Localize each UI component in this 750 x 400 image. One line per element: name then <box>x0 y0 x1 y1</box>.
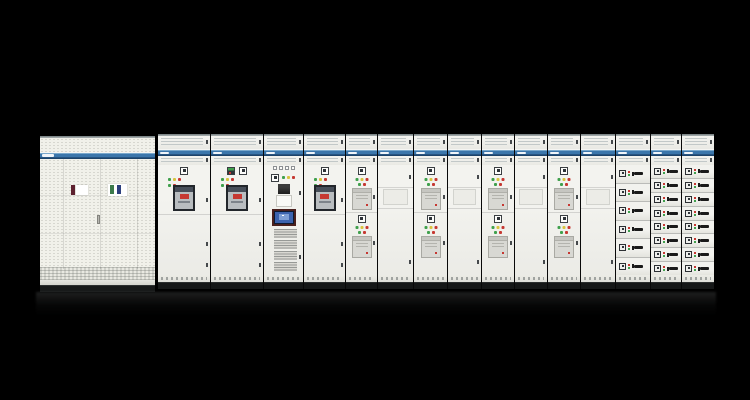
drawer-indicators <box>694 169 696 174</box>
drawer-indicators <box>663 252 665 257</box>
terminal-module-group <box>271 240 297 249</box>
module-red-dot <box>502 204 504 206</box>
mesh-seam <box>581 187 615 188</box>
drawer-indicator-green <box>694 269 696 271</box>
drawer-unit <box>682 221 714 235</box>
louver-latch <box>341 140 343 144</box>
handle-grip <box>634 265 643 268</box>
breaker-control-device <box>358 167 366 175</box>
drawer-indicator-red <box>628 190 630 192</box>
drawer-indicator-green <box>694 200 696 202</box>
drawer-handle <box>698 169 709 173</box>
brand-logo-mark <box>306 152 315 154</box>
indicator-light-green <box>560 183 563 186</box>
mini-indicator <box>273 166 277 170</box>
cabinet-feeder-3 <box>481 134 514 289</box>
louver-latch <box>611 140 613 144</box>
bottom-vent-strip <box>158 275 210 282</box>
indicator-light-green <box>494 183 497 186</box>
drawer-handle <box>667 239 678 243</box>
drawer-unit <box>651 165 681 179</box>
indicator-light-green <box>221 184 224 187</box>
module-red-dot <box>568 252 570 254</box>
door-seam <box>304 214 345 215</box>
louver-latch <box>543 140 545 144</box>
louver-latch <box>477 140 479 144</box>
module-top-strip <box>555 189 573 193</box>
handle-grip <box>700 225 709 228</box>
drawer-indicator-green <box>628 193 630 195</box>
drawer-unit <box>682 248 714 262</box>
drawer-indicator-green <box>663 227 665 229</box>
vent-slats <box>451 277 478 280</box>
louver-latch <box>259 140 261 144</box>
louver-slats <box>161 138 203 147</box>
handle-grip <box>669 170 678 173</box>
cabinet-vent-door-1 <box>377 134 413 289</box>
acb-breaker-window <box>173 185 195 211</box>
indicator-light-red <box>432 183 435 186</box>
bottom-vent-strip <box>378 275 413 282</box>
drawer-meter-window <box>685 251 692 258</box>
louver-latch <box>409 140 411 144</box>
brand-logo-mark <box>266 152 275 154</box>
bottom-vent-strip <box>346 275 377 282</box>
top-louver-panel <box>682 136 714 149</box>
recorder-box <box>276 195 292 207</box>
indicator-lights <box>221 178 234 181</box>
drawer-indicator-red <box>663 266 665 268</box>
breaker-control-device <box>239 167 247 175</box>
drawer-indicator-green <box>628 230 630 232</box>
cabinet-mcc-drawers-3 <box>681 134 714 289</box>
top-louver-panel <box>581 136 615 149</box>
louver-latch <box>677 140 679 144</box>
module-line <box>558 243 570 244</box>
cabinet-plinth <box>414 282 447 289</box>
indicator-light-green <box>168 178 171 181</box>
drawer-handle <box>698 267 709 271</box>
louver-slats <box>214 138 256 147</box>
upper-louver-panel <box>682 156 714 165</box>
drawer-indicator-green <box>628 248 630 250</box>
door-seam-1 <box>100 159 101 269</box>
mesh-seam <box>515 187 547 188</box>
bottom-vent-strip <box>304 275 345 282</box>
indicator-light-green <box>355 178 358 181</box>
vent-slats <box>685 277 711 280</box>
indicator-light-red <box>178 178 181 181</box>
drawer-meter-window <box>619 207 626 214</box>
brand-logo-mark <box>653 152 662 154</box>
indicator-light-green <box>427 183 430 186</box>
indicator-light-yellow <box>287 176 290 179</box>
drawer-unit <box>616 258 650 276</box>
indicator-light-red <box>231 178 234 181</box>
mesh-cover-plate <box>586 189 610 205</box>
module-line <box>492 243 504 244</box>
mesh-ventilated-door <box>581 165 615 275</box>
louver-latch <box>646 140 648 144</box>
cabinet-plinth <box>616 282 650 289</box>
indicator-lights <box>560 183 568 186</box>
drawer-handle <box>698 183 709 187</box>
indicator-light-red <box>502 226 505 229</box>
brand-logo-mark <box>213 152 222 154</box>
louver-latch <box>206 158 208 162</box>
door-latch <box>373 195 375 199</box>
vent-slats <box>485 277 511 280</box>
drawer-indicators <box>694 266 696 271</box>
cabinet-plinth <box>211 282 263 289</box>
cabinet-door-area <box>548 165 580 275</box>
indicator-light-yellow <box>429 178 432 181</box>
acb-rating-plate <box>180 194 189 199</box>
indicator-light-red <box>324 178 327 181</box>
drawer-indicators <box>663 238 665 243</box>
drawer-indicator-green <box>628 211 630 213</box>
door-latch <box>611 260 613 264</box>
indicator-light-red <box>363 183 366 186</box>
acb-face-top <box>175 187 193 192</box>
drawer-handle <box>632 172 643 176</box>
indicator-light-green <box>427 231 430 234</box>
cabinet-plinth <box>581 282 615 289</box>
louver-latch <box>443 158 445 162</box>
louver-slats <box>349 138 370 147</box>
bottom-vent-strip <box>548 275 580 282</box>
louver-slats <box>485 158 507 163</box>
cabinet-plinth <box>304 282 345 289</box>
drawer-indicator-red <box>694 224 696 226</box>
cabinet-plinth <box>515 282 547 289</box>
module-red-dot <box>568 204 570 206</box>
door-hseam-0 <box>40 195 155 196</box>
tier-divider <box>548 212 580 213</box>
door-latch <box>206 198 208 202</box>
acb-label <box>178 201 190 203</box>
drawer-meter-window <box>654 210 661 217</box>
louver-latch <box>646 158 648 162</box>
door-latch <box>341 198 343 202</box>
indicator-light-green <box>221 178 224 181</box>
indicator-light-yellow <box>497 226 500 229</box>
upper-louver-panel <box>378 156 413 165</box>
module-line <box>558 195 570 196</box>
indicator-lights <box>494 231 502 234</box>
door-latch <box>543 260 545 264</box>
drawer-indicator-red <box>663 197 665 199</box>
brand-band <box>264 149 303 156</box>
perforated-doors <box>40 159 155 268</box>
module-red-dot <box>435 204 437 206</box>
module-top-strip <box>422 189 440 193</box>
louver-slats <box>349 158 370 163</box>
indicator-light-yellow <box>360 178 363 181</box>
cabinet-plinth <box>448 282 481 289</box>
brand-band <box>304 149 345 156</box>
cabinet-door-area <box>651 165 681 275</box>
top-louver-panel <box>158 136 210 149</box>
module-line <box>425 246 437 247</box>
louver-slats <box>417 158 440 163</box>
drawer-handle <box>667 225 678 229</box>
louver-slats <box>619 138 643 147</box>
indicator-light-green <box>424 226 427 229</box>
top-louver-panel <box>548 136 580 149</box>
indicator-lights <box>168 178 181 181</box>
drawer-handle <box>632 209 643 213</box>
indicator-lights <box>492 226 505 229</box>
module-top-strip <box>422 237 440 241</box>
indicator-lights <box>492 178 505 181</box>
louver-slats <box>267 158 296 163</box>
drawer-indicator-red <box>694 169 696 171</box>
upper-louver-panel <box>346 156 377 165</box>
louver-slats <box>518 158 540 163</box>
drawer-indicator-green <box>694 172 696 174</box>
module-line <box>356 195 368 196</box>
cabinet-door-area <box>346 165 377 275</box>
drawer-unit <box>651 193 681 207</box>
breaker-control-device <box>560 167 568 175</box>
louver-slats <box>584 138 608 147</box>
drawer-indicators <box>694 197 696 202</box>
acb-breaker-window <box>314 185 336 211</box>
drawer-meter-window <box>685 223 692 230</box>
drawer-indicators <box>663 169 665 174</box>
door-latch <box>443 195 445 199</box>
indicator-light-green <box>424 178 427 181</box>
handle-grip <box>634 209 643 212</box>
perforated-top-panel <box>40 138 155 152</box>
brand-logo-mark <box>517 152 526 154</box>
drawer-indicator-green <box>663 186 665 188</box>
door-latch <box>477 175 479 179</box>
brand-logo-mark <box>348 152 357 154</box>
cabinet-plinth <box>548 282 580 289</box>
mesh-seam <box>448 187 481 188</box>
drawer-indicators <box>663 266 665 271</box>
handle-grip <box>669 253 678 256</box>
acb-face-top <box>316 187 334 192</box>
louver-latch <box>373 158 375 162</box>
handle-grip <box>634 172 643 175</box>
drawer-unit <box>682 193 714 207</box>
indicator-lights <box>427 183 435 186</box>
door-latch <box>373 241 375 245</box>
bottom-vent-strip <box>264 275 303 282</box>
brand-band <box>211 149 263 156</box>
brand-band <box>651 149 681 156</box>
drawer-unit <box>651 179 681 193</box>
louver-slats <box>214 158 256 163</box>
louver-slats <box>267 138 296 147</box>
louver-slats <box>584 158 608 163</box>
module-line <box>356 243 368 244</box>
drawer-handle <box>667 253 678 257</box>
louver-slats <box>685 138 707 147</box>
brand-logo-mark <box>583 152 592 154</box>
louver-slats <box>451 158 474 163</box>
drawer-indicators <box>628 264 630 269</box>
tier-divider <box>346 212 377 213</box>
indicator-light-yellow <box>563 178 566 181</box>
acb-rating-plate <box>320 194 329 199</box>
drawer-indicator-green <box>694 214 696 216</box>
left-distribution-cabinet <box>40 136 155 292</box>
louver-slats <box>307 138 338 147</box>
drawer-handle <box>698 211 709 215</box>
drawer-handle <box>632 190 643 194</box>
cabinet-incomer-3 <box>303 134 345 289</box>
indicator-light-green <box>494 231 497 234</box>
drawer-meter-window <box>654 223 661 230</box>
door-latch <box>611 175 613 179</box>
multimeter <box>227 167 235 175</box>
louver-latch <box>543 158 545 162</box>
withdrawable-module <box>352 188 372 210</box>
withdrawable-module <box>488 236 508 258</box>
upper-louver-panel <box>158 156 210 165</box>
drawer-indicator-red <box>628 245 630 247</box>
bottom-vent-strip <box>211 275 263 282</box>
label-group-left <box>71 185 88 195</box>
top-louver-panel <box>651 136 681 149</box>
indicator-light-green <box>558 178 561 181</box>
brand-logo-mark <box>618 152 627 154</box>
drawer-handle <box>698 239 709 243</box>
drawer-indicators <box>628 245 630 250</box>
handle-grip <box>634 191 643 194</box>
louver-slats <box>381 138 406 147</box>
mesh-seam <box>581 208 615 209</box>
handle-grip <box>669 184 678 187</box>
louver-slats <box>518 138 540 147</box>
drawer-meter-window <box>654 168 661 175</box>
drawer-meter-window <box>619 170 626 177</box>
louver-latch <box>677 158 679 162</box>
indicator-light-red <box>432 231 435 234</box>
module-top-strip <box>489 189 507 193</box>
louver-slats <box>654 158 674 163</box>
drawer-indicator-green <box>663 269 665 271</box>
cabinet-incomer-1 <box>158 134 210 289</box>
maroon-label <box>71 185 75 195</box>
drawer-unit <box>616 165 650 184</box>
door-latch <box>409 260 411 264</box>
mesh-ventilated-door <box>515 165 547 275</box>
brand-band <box>616 149 650 156</box>
drawer-indicator-red <box>628 227 630 229</box>
drawer-unit <box>651 207 681 221</box>
drawer-indicator-red <box>663 224 665 226</box>
breaker-control-device <box>180 167 188 175</box>
indicator-lights <box>560 231 568 234</box>
module-red-dot <box>435 252 437 254</box>
brand-band <box>682 149 714 156</box>
door-latch <box>259 263 261 267</box>
drawer-handle <box>632 227 643 231</box>
drawer-unit <box>682 262 714 275</box>
drawer-indicators <box>694 238 696 243</box>
drawer-unit <box>682 207 714 221</box>
terminal-module-group <box>271 251 297 260</box>
cabinet-control-hmi <box>263 134 303 289</box>
drawer-unit <box>651 262 681 275</box>
module-red-dot <box>366 252 368 254</box>
withdrawable-module <box>488 188 508 210</box>
door-seam-0 <box>63 159 64 269</box>
indicator-light-red <box>568 226 571 229</box>
cabinet-vent-door-4 <box>580 134 615 289</box>
drawer-meter-window <box>685 182 692 189</box>
brand-logo-mark <box>42 154 54 157</box>
drawer-indicator-red <box>628 171 630 173</box>
handle-grip <box>700 198 709 201</box>
acb-label <box>231 201 243 203</box>
vent-slats <box>584 277 612 280</box>
drawer-handle <box>667 183 678 187</box>
door-latch <box>341 242 343 246</box>
indicator-light-red <box>565 183 568 186</box>
upper-louver-panel <box>264 156 303 165</box>
drawer-indicators <box>694 211 696 216</box>
module-line <box>356 246 368 247</box>
withdrawable-module <box>554 236 574 258</box>
brand-band <box>158 149 210 156</box>
louver-latch <box>259 158 261 162</box>
drawer-handle <box>632 264 643 268</box>
cabinet-vent-door-3 <box>514 134 547 289</box>
door-seam-2 <box>137 159 138 269</box>
drawer-indicators <box>628 227 630 232</box>
mesh-ventilated-door <box>448 165 481 275</box>
drawer-indicator-red <box>663 211 665 213</box>
door-latch <box>299 191 301 195</box>
acb-face-top <box>228 187 246 192</box>
breaker-control-device <box>358 215 366 223</box>
breaker-control-device <box>271 174 279 182</box>
indicator-light-green <box>558 226 561 229</box>
bottom-vent-strip <box>515 275 547 282</box>
indicator-lights <box>558 178 571 181</box>
drawer-indicators <box>663 197 665 202</box>
drawer-handle <box>667 197 678 201</box>
brand-band <box>378 149 413 156</box>
indicator-light-yellow <box>563 226 566 229</box>
indicator-light-green <box>355 226 358 229</box>
cabinet-plinth <box>158 282 210 289</box>
mesh-cover-plate <box>383 189 408 205</box>
drawer-handle <box>667 169 678 173</box>
handle-grip <box>634 246 643 249</box>
vent-slats <box>518 277 544 280</box>
upper-louver-panel <box>414 156 447 165</box>
breaker-control-device <box>321 167 329 175</box>
louver-slats <box>654 138 674 147</box>
brand-band <box>346 149 377 156</box>
brand-band <box>414 149 447 156</box>
bottom-vent-strip <box>448 275 481 282</box>
drawer-unit <box>651 248 681 262</box>
louver-latch <box>576 140 578 144</box>
upper-louver-panel <box>548 156 580 165</box>
indicator-lights <box>314 178 327 181</box>
indicator-light-red <box>365 226 368 229</box>
drawer-handle <box>698 197 709 201</box>
drawer-unit <box>616 239 650 258</box>
